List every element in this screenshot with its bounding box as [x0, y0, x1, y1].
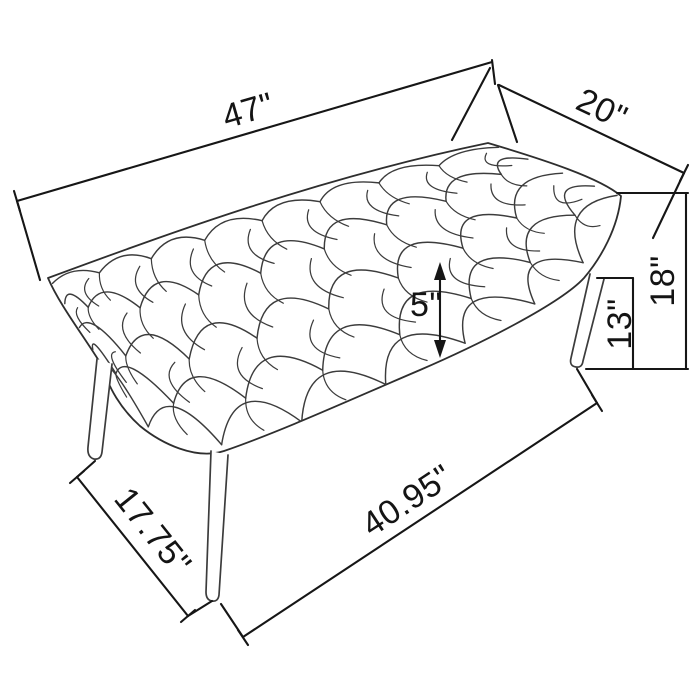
dimension-leg-height: 13" — [597, 278, 639, 369]
extension-line — [498, 85, 517, 142]
bench-leg-front — [206, 451, 228, 601]
bench-cushion-outline — [48, 143, 621, 454]
diagram-canvas: 47" 20" 18" 13" 5" — [0, 0, 700, 700]
bench-leg-right — [571, 274, 604, 367]
extension-line — [653, 173, 684, 238]
extension-line — [17, 201, 40, 280]
depth-label: 20" — [570, 81, 633, 137]
tick-mark — [238, 630, 248, 645]
bench-leg-left — [88, 359, 112, 459]
length-label: 47" — [218, 85, 278, 136]
overall-height-label: 18" — [644, 255, 682, 306]
dimension-diagram: 47" 20" 18" 13" 5" — [0, 0, 700, 700]
tick-mark — [492, 60, 495, 84]
foot-length-span-label: 40.95" — [355, 457, 459, 544]
dimension-foot-depth-span: 17.75" — [70, 461, 212, 622]
extension-line — [577, 369, 597, 403]
tick-mark — [70, 471, 84, 483]
extension-line — [188, 601, 212, 616]
extension-line — [452, 68, 490, 140]
dimension-line — [243, 403, 597, 637]
leg-height-label: 13" — [601, 298, 639, 349]
seat-thickness-label: 5" — [410, 286, 442, 324]
